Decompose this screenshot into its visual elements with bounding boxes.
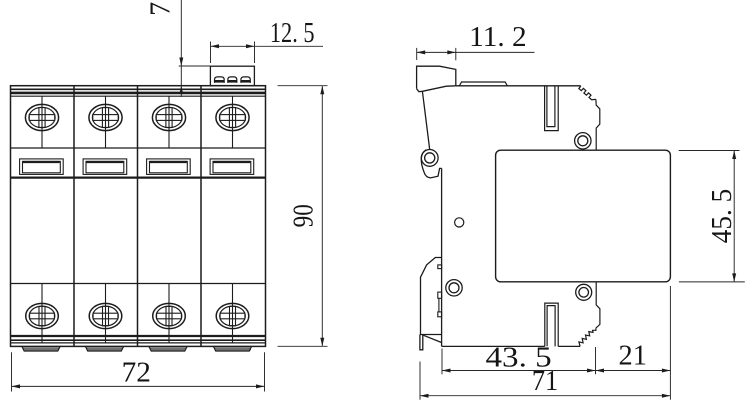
svg-text:7: 7 xyxy=(146,2,177,16)
svg-text:71: 71 xyxy=(532,366,558,397)
svg-text:12. 5: 12. 5 xyxy=(270,18,315,49)
svg-text:11. 2: 11. 2 xyxy=(469,22,527,53)
svg-text:72: 72 xyxy=(122,357,151,388)
svg-text:21: 21 xyxy=(619,340,647,371)
svg-text:90: 90 xyxy=(289,204,320,227)
svg-text:45. 5: 45. 5 xyxy=(707,189,738,243)
